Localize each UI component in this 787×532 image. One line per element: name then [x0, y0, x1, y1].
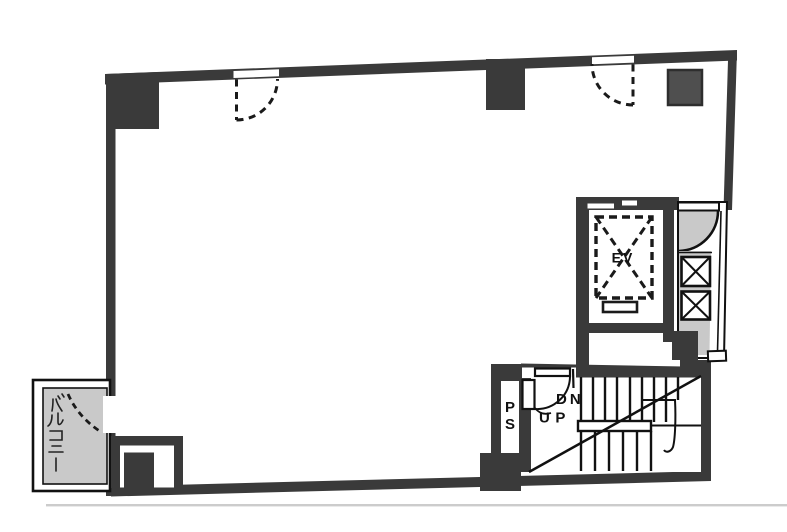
- svg-text:S: S: [505, 416, 515, 433]
- svg-text:P: P: [505, 399, 515, 416]
- svg-text:DN: DN: [556, 391, 584, 408]
- svg-text:EV: EV: [612, 250, 635, 266]
- svg-text:UP: UP: [539, 410, 571, 427]
